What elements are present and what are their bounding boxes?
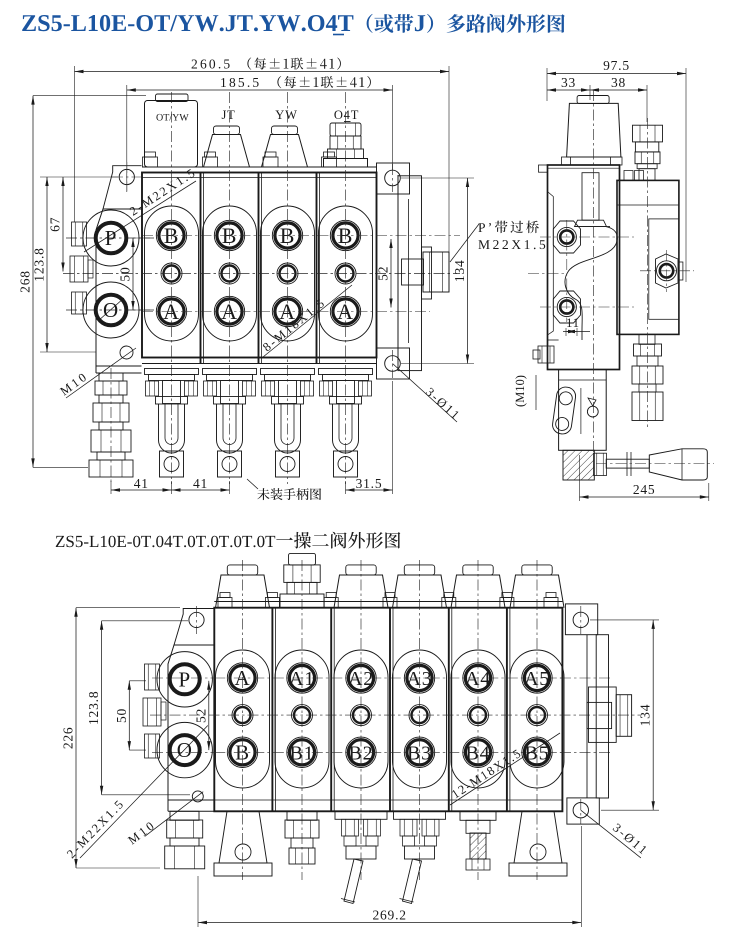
svg-text:41: 41 <box>134 476 149 491</box>
svg-text:67: 67 <box>48 217 63 232</box>
svg-text:52: 52 <box>376 266 391 281</box>
svg-text:YW: YW <box>275 108 297 122</box>
svg-text:O4T: O4T <box>334 108 359 122</box>
svg-text:P: P <box>178 667 190 691</box>
svg-text:38: 38 <box>611 75 626 90</box>
svg-text:123.8: 123.8 <box>32 247 47 281</box>
svg-text:52: 52 <box>193 708 208 723</box>
svg-text:97.5: 97.5 <box>603 58 630 73</box>
svg-text:185.5: 185.5 <box>220 75 261 90</box>
svg-text:226: 226 <box>61 727 76 750</box>
svg-text:31.5: 31.5 <box>356 476 383 491</box>
svg-text:41: 41 <box>193 476 208 491</box>
svg-text:123.8: 123.8 <box>86 691 101 725</box>
svg-text:260.5: 260.5 <box>191 57 232 72</box>
svg-text:50: 50 <box>118 266 133 281</box>
svg-text:134: 134 <box>452 259 467 282</box>
svg-text:JT: JT <box>221 108 235 122</box>
svg-text:268: 268 <box>18 270 33 293</box>
svg-text:50: 50 <box>114 708 129 723</box>
svg-text:269.2: 269.2 <box>372 908 406 923</box>
svg-text:11: 11 <box>566 316 580 330</box>
svg-text:245: 245 <box>633 482 656 497</box>
svg-text:O: O <box>177 738 193 762</box>
svg-text:134: 134 <box>638 704 653 727</box>
svg-text:33: 33 <box>561 75 576 90</box>
